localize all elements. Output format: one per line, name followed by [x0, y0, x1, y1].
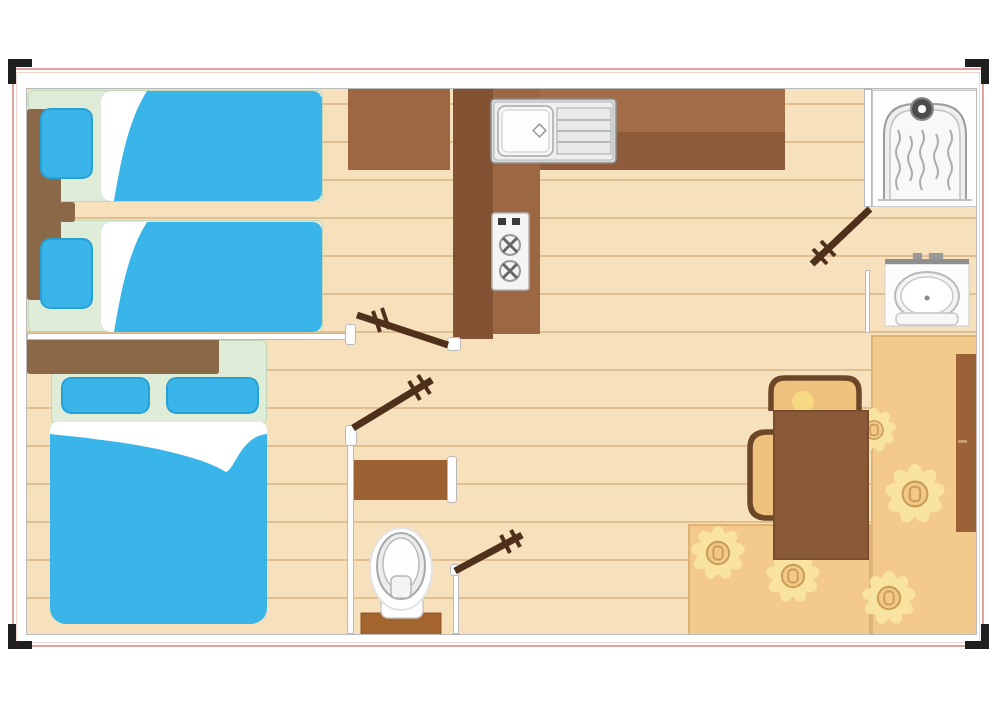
floor-plan — [12, 68, 984, 647]
door-bathroom — [812, 209, 870, 264]
corner-mark-top-left — [8, 59, 32, 84]
door-leaves — [27, 89, 976, 634]
corner-mark-top-right — [965, 59, 989, 84]
door-wc — [455, 530, 522, 571]
floor-plan-page: { "palette": { "floor_tan": "#f7e1bd", "… — [0, 0, 1000, 721]
corner-mark-bottom-left — [8, 624, 32, 649]
door-twin-bedroom — [357, 308, 448, 345]
corner-mark-bottom-right — [965, 624, 989, 649]
door-double-bedroom — [353, 375, 432, 428]
floor-area — [26, 88, 977, 635]
